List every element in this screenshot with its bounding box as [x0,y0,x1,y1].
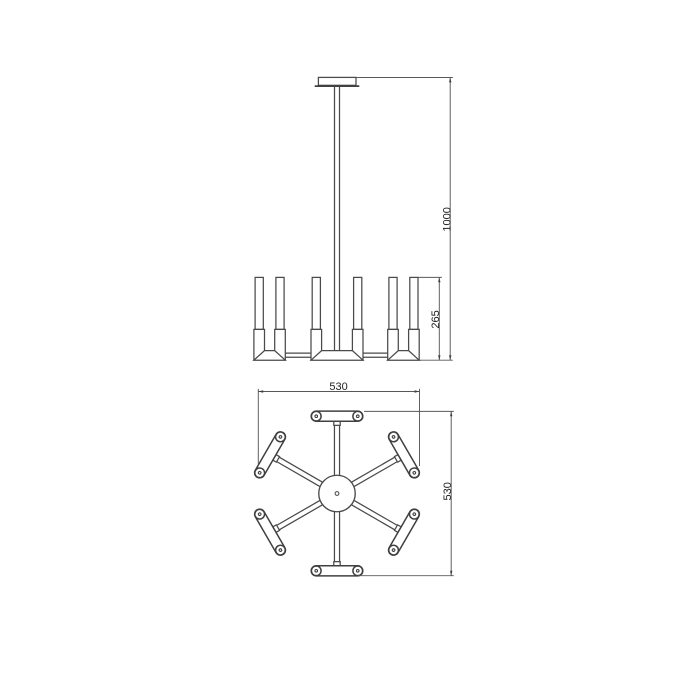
svg-text:265: 265 [430,310,442,328]
svg-text:1000: 1000 [441,207,453,231]
svg-text:530: 530 [329,381,347,393]
svg-text:530: 530 [442,482,454,500]
